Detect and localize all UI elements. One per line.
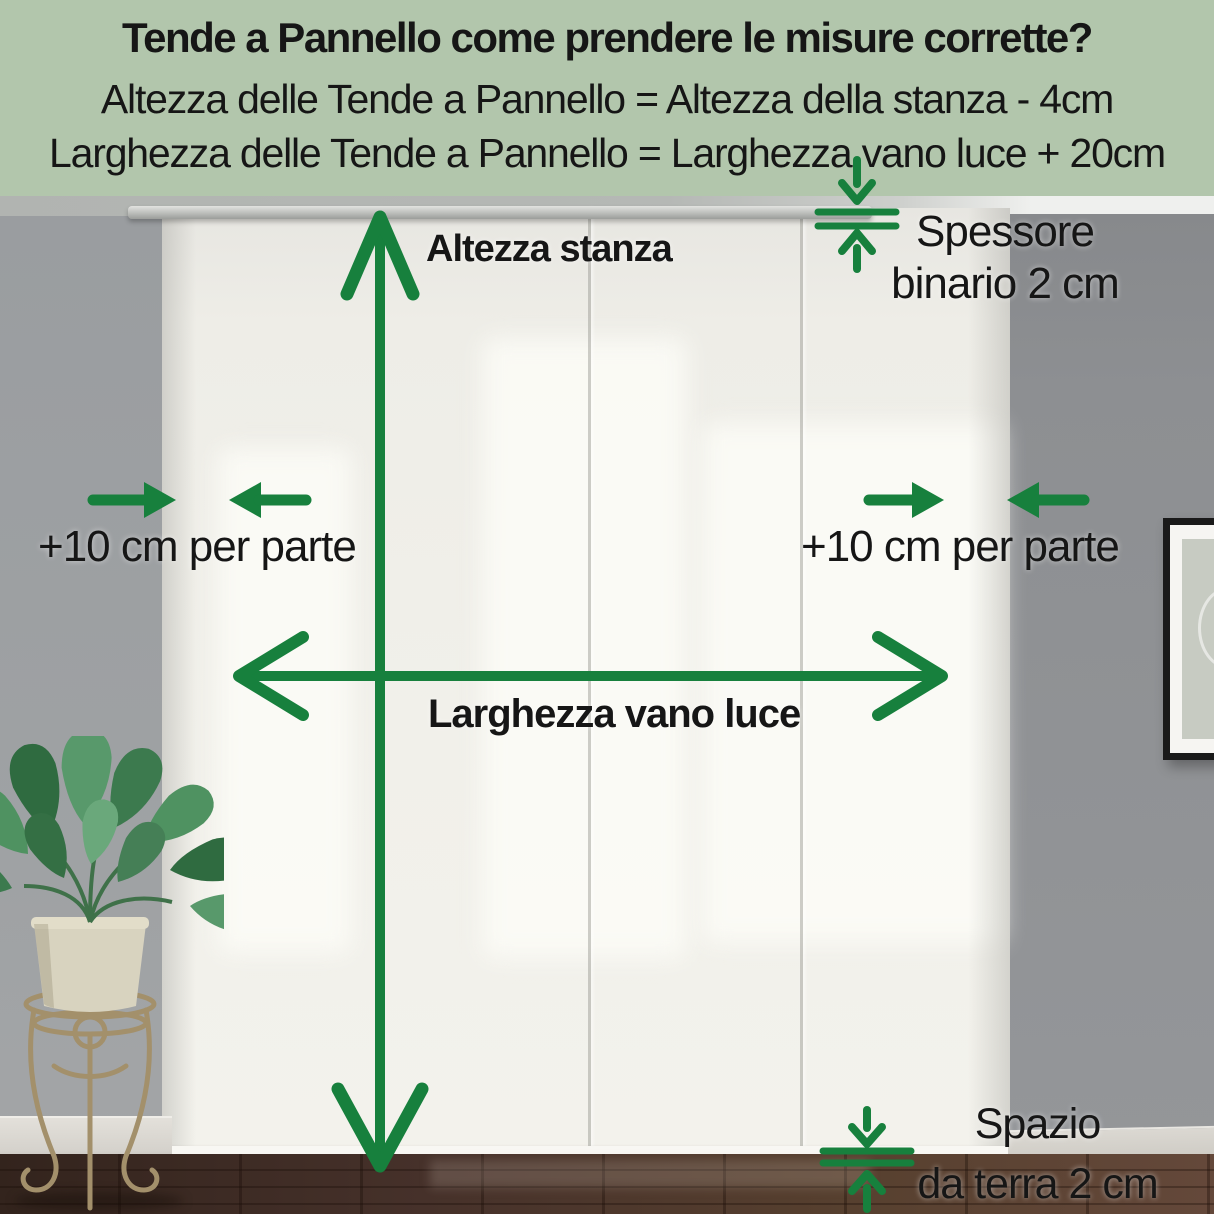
rail-thickness-label-line2: binario 2 cm [880,258,1130,310]
potted-plant-image [0,736,224,1214]
curtain-panel-seam [588,208,591,1160]
picture-circle-motif [1198,587,1214,669]
curtain-panel-seam [800,208,803,1160]
floor-gap-label-line1: Spazio [905,1094,1170,1154]
floor-gap-label-line2: da terra 2 cm [905,1154,1170,1214]
height-formula-text: Altezza delle Tende a Pannello = Altezza… [0,76,1214,123]
rail-thickness-label-line1: Spessore [880,206,1130,258]
picture-artwork [1182,539,1214,739]
plant-stand [23,991,157,1208]
right-offset-label: +10 cm per parte [801,522,1119,572]
floor-gap-label: Spazio da terra 2 cm [905,1094,1170,1214]
light-patch [482,338,687,958]
rail-thickness-label: Spessore binario 2 cm [880,206,1130,310]
width-formula-text: Larghezza delle Tende a Pannello = Largh… [0,130,1214,177]
plant-pot [31,917,149,1012]
page-title: Tende a Pannello come prendere le misure… [0,14,1214,62]
header-banner: Tende a Pannello come prendere le misure… [0,0,1214,196]
curtain-rail [128,206,872,219]
infographic-root: Tende a Pannello come prendere le misure… [0,0,1214,1214]
room-height-label: Altezza stanza [426,228,672,271]
light-patch [702,423,1002,943]
curtain-panel-seam [378,208,381,1160]
wall-picture [1163,518,1214,760]
panel-curtains [162,208,1010,1160]
floor-reflection [430,1160,870,1188]
curtain-right-shade [968,208,1010,1160]
window-width-label: Larghezza vano luce [428,692,800,737]
left-offset-label: +10 cm per parte [38,522,356,572]
